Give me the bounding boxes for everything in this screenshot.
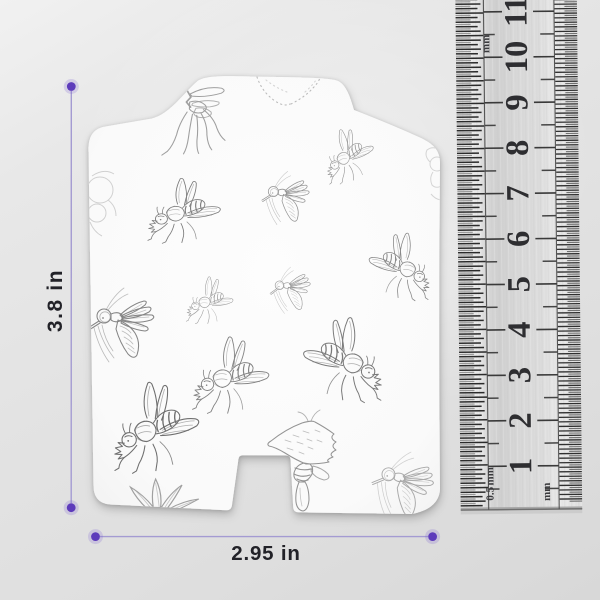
svg-text:3: 3 xyxy=(502,367,538,384)
svg-text:3.8 in: 3.8 in xyxy=(44,269,67,332)
svg-text:4: 4 xyxy=(502,321,538,338)
svg-text:mm: mm xyxy=(541,482,553,500)
svg-text:0.5: 0.5 xyxy=(484,486,496,500)
svg-text:11: 11 xyxy=(498,0,534,27)
svg-text:5: 5 xyxy=(501,276,537,293)
svg-text:8: 8 xyxy=(500,140,536,157)
svg-text:6: 6 xyxy=(501,230,537,247)
svg-text:mm: mm xyxy=(480,35,492,53)
svg-text:1: 1 xyxy=(503,458,539,475)
svg-text:10: 10 xyxy=(499,41,535,74)
svg-text:2: 2 xyxy=(503,412,539,429)
svg-text:2.95 in: 2.95 in xyxy=(231,542,300,565)
svg-text:mm: mm xyxy=(484,467,496,485)
svg-text:9: 9 xyxy=(499,94,535,111)
svg-text:7: 7 xyxy=(500,185,536,202)
